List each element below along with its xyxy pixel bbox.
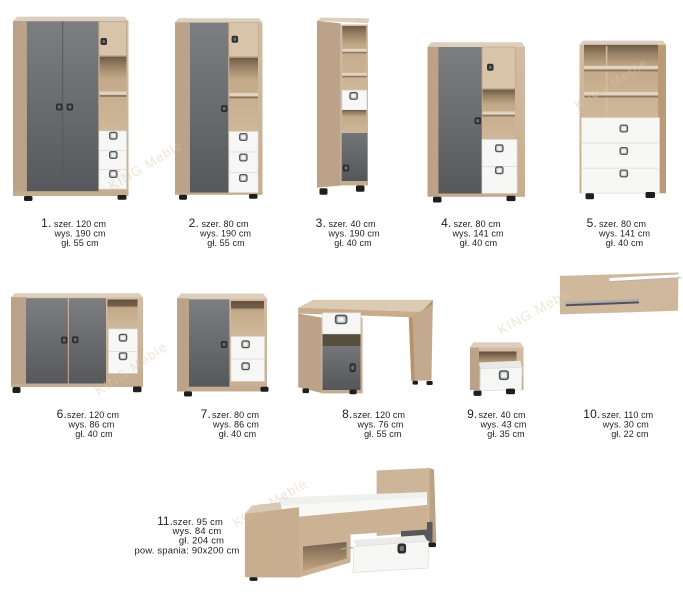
svg-text:9.: 9. [467,407,477,421]
svg-text:gł. 55 cm: gł. 55 cm [207,238,244,248]
svg-text:5.: 5. [587,216,597,230]
svg-text:szer. 80 cm: szer. 80 cm [212,410,259,420]
svg-text:3.: 3. [316,216,326,230]
svg-text:gł. 22 cm: gł. 22 cm [611,429,648,439]
svg-text:7.: 7. [201,407,211,421]
svg-text:8.: 8. [342,407,352,421]
svg-text:szer. 120 cm: szer. 120 cm [67,410,119,420]
svg-text:gł. 40 cm: gł. 40 cm [460,238,497,248]
svg-text:wys. 86 cm: wys. 86 cm [67,419,114,429]
svg-text:pow. spania: 90x200 cm: pow. spania: 90x200 cm [135,544,240,555]
svg-text:wys. 43 cm: wys. 43 cm [479,419,526,429]
svg-text:11.: 11. [157,516,173,528]
svg-text:szer. 110 cm: szer. 110 cm [602,410,654,420]
svg-text:gł. 40 cm: gł. 40 cm [334,238,371,248]
svg-text:6.: 6. [57,407,67,421]
svg-text:szer. 120 cm: szer. 120 cm [353,410,405,420]
svg-text:1.: 1. [41,216,51,230]
svg-text:gł. 55 cm: gł. 55 cm [61,238,98,248]
svg-text:10.: 10. [583,407,600,421]
svg-text:gł. 40 cm: gł. 40 cm [606,238,643,248]
svg-text:wys. 86 cm: wys. 86 cm [212,419,259,429]
svg-text:wys. 30 cm: wys. 30 cm [602,419,649,429]
svg-text:4.: 4. [441,216,451,230]
svg-text:gł. 55 cm: gł. 55 cm [364,429,401,439]
svg-text:szer. 40 cm: szer. 40 cm [478,410,525,420]
svg-text:gł. 35 cm: gł. 35 cm [487,429,524,439]
svg-text:wys. 76 cm: wys. 76 cm [356,419,403,429]
svg-text:2.: 2. [189,216,199,230]
svg-text:gł. 40 cm: gł. 40 cm [219,429,256,439]
svg-text:gł. 40 cm: gł. 40 cm [75,429,112,439]
